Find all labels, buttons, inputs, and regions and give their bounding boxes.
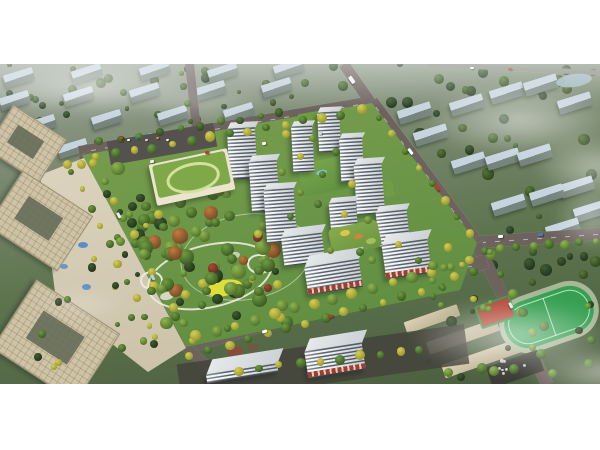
street-trees	[296, 358, 306, 368]
park-trees-dense	[172, 228, 188, 244]
plaza-trees	[150, 340, 158, 348]
cloud	[515, 344, 600, 384]
park-trees	[136, 194, 144, 202]
street-trees	[301, 320, 309, 328]
roadside-forest	[590, 256, 600, 267]
street-trees	[466, 229, 475, 238]
courtyard-tree	[282, 130, 290, 138]
street-trees	[496, 244, 506, 254]
street-trees	[406, 272, 417, 283]
background-housing-slab	[491, 193, 528, 216]
roadside-forest	[540, 264, 552, 276]
street-trees	[97, 223, 103, 229]
plaza-trees	[77, 160, 86, 169]
roadside-trees	[450, 272, 459, 281]
park-trees-dense	[147, 287, 156, 296]
courtyard-tree	[364, 216, 372, 224]
park-trees	[127, 218, 137, 228]
park-trees-dense	[264, 284, 272, 292]
roadside-trees	[428, 261, 437, 270]
courtyard-tree	[332, 148, 340, 156]
street-trees	[139, 249, 149, 259]
roadside-forest	[557, 257, 566, 266]
plaza-trees	[154, 210, 163, 219]
cloud	[552, 182, 600, 254]
park-trees	[160, 317, 172, 329]
street-trees	[111, 148, 121, 158]
park-trees-dense	[239, 256, 247, 264]
street-trees	[327, 294, 338, 305]
street-trees	[110, 197, 118, 205]
background-trees	[536, 214, 542, 220]
park-trees-dense	[261, 258, 274, 271]
residential-slab-retail	[302, 248, 362, 294]
street-trees	[262, 124, 269, 131]
roadside-trees	[440, 264, 448, 272]
plaza-canopy	[60, 264, 68, 269]
courtyard-tree	[319, 171, 326, 178]
roadside-forest	[567, 253, 574, 260]
roadside-trees	[459, 262, 465, 268]
street-trees	[367, 283, 378, 294]
street-trees	[80, 186, 86, 192]
street-trees	[141, 314, 148, 321]
street-trees	[497, 271, 504, 278]
street-trees	[530, 242, 538, 250]
street-kiosk	[248, 343, 259, 350]
street-trees	[336, 111, 345, 120]
street-trees	[250, 315, 260, 325]
courtyard-tree	[341, 211, 348, 218]
street-trees	[101, 178, 109, 186]
facade	[291, 125, 314, 172]
park-trees	[232, 311, 241, 320]
aerial-site-render	[0, 64, 600, 384]
park-trees	[198, 301, 206, 309]
architectural-rendering-page	[0, 0, 600, 450]
courtyard-tree	[348, 180, 356, 188]
plaza-trees	[159, 223, 167, 231]
roadside-trees	[444, 243, 452, 251]
street-trees	[187, 136, 197, 146]
courtyard-tree	[327, 247, 334, 254]
street-trees	[204, 346, 213, 355]
courtyard-tree	[287, 213, 294, 220]
street-trees	[124, 279, 130, 285]
street-trees	[380, 299, 387, 306]
street-trees	[339, 307, 348, 316]
plaza-trees	[140, 337, 148, 345]
street-trees	[359, 304, 367, 312]
park-trees	[224, 211, 235, 222]
background-trees	[506, 226, 514, 234]
courtyard-tree	[415, 257, 422, 264]
park-trees	[111, 162, 125, 176]
office-courtyard	[14, 196, 63, 241]
street-trees	[465, 256, 473, 264]
roadside-forest	[524, 258, 535, 269]
plaza-trees	[122, 251, 128, 257]
street-trees	[255, 365, 263, 373]
roadside-forest	[529, 279, 536, 286]
street-trees	[282, 121, 289, 128]
office-courtyard	[7, 124, 44, 158]
plaza-trees	[88, 263, 96, 271]
residential-tower	[291, 120, 315, 171]
cloud	[30, 288, 130, 322]
street-trees	[212, 326, 223, 337]
courtyard-tree	[309, 135, 316, 142]
park-trees-dense	[254, 287, 264, 297]
courtyard-tree	[395, 241, 402, 248]
park-trees-dense	[211, 218, 220, 227]
street-trees	[106, 240, 114, 248]
car	[538, 233, 543, 236]
park-trees	[191, 226, 202, 237]
street-trees	[157, 284, 166, 293]
street-trees	[130, 230, 139, 239]
street-trees	[205, 131, 215, 141]
street-trees	[355, 350, 365, 360]
courtyard-tree	[254, 230, 262, 238]
park-trees	[212, 294, 223, 305]
courtyard-tree	[278, 168, 286, 176]
street-trees	[512, 243, 520, 251]
street-trees	[156, 128, 164, 136]
plaza-trees	[63, 160, 72, 169]
street-trees	[299, 116, 306, 123]
park-trees	[249, 275, 255, 281]
street-trees	[377, 351, 384, 358]
street-trees	[317, 113, 327, 123]
plaza-trees	[34, 353, 42, 361]
plaza-trees	[143, 223, 149, 229]
street-trees	[225, 341, 235, 351]
courtyard-tree	[368, 256, 376, 264]
courtyard-tree	[356, 248, 364, 256]
roadside-forest	[579, 270, 587, 278]
street-trees	[441, 196, 450, 205]
courtyard-tree	[314, 200, 322, 208]
plaza-trees	[51, 364, 57, 370]
street-trees	[397, 347, 406, 356]
plaza-trees	[135, 272, 140, 277]
courtyard-tree	[297, 189, 304, 196]
park-trees	[171, 312, 180, 321]
plaza-trees	[38, 330, 46, 338]
courtyard-tree	[297, 153, 304, 160]
plaza-canopy	[78, 242, 88, 248]
street-trees	[68, 169, 74, 175]
cloud	[130, 84, 270, 124]
street-trees	[418, 288, 426, 296]
street-trees	[179, 319, 187, 327]
street-trees	[244, 335, 252, 343]
street-trees	[388, 130, 395, 137]
street-trees	[389, 278, 397, 286]
residential-slab-retail	[380, 230, 431, 278]
street-trees	[190, 330, 201, 341]
street-trees	[281, 323, 291, 333]
roadside-trees	[469, 267, 478, 276]
plaza-trees	[147, 323, 152, 328]
street-trees	[131, 146, 139, 154]
street-trees	[309, 299, 319, 309]
car	[498, 235, 503, 238]
